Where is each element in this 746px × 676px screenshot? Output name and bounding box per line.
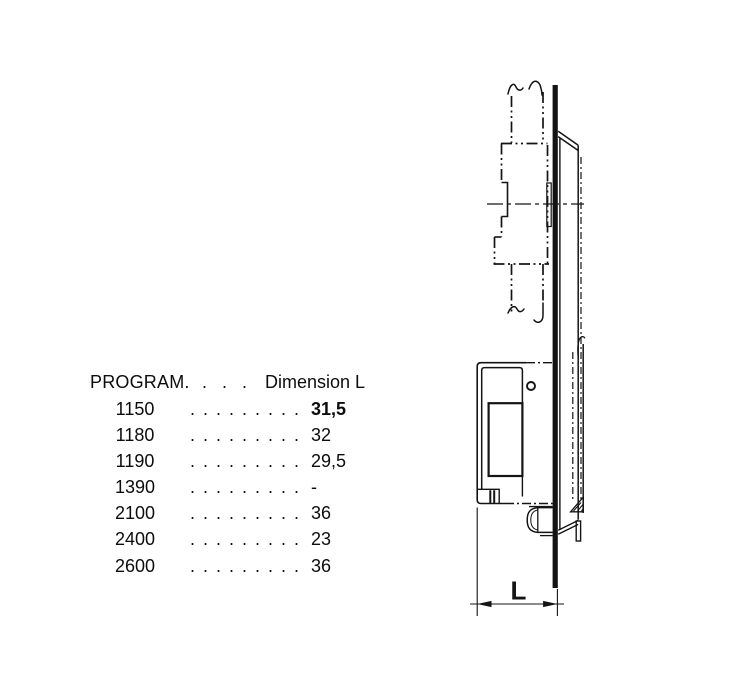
table-header-dimension: Dimension L — [265, 369, 365, 396]
arrow-right-icon — [543, 601, 557, 607]
program-number: 1390 — [90, 474, 180, 500]
dot-leader: ......... — [190, 474, 309, 500]
break-line-squiggles — [508, 81, 543, 322]
dot-leader: ......... — [190, 396, 309, 422]
dimension-value: 36 — [311, 553, 331, 579]
dimension-value: 29,5 — [311, 448, 346, 474]
table-row: 1190 ......... 29,5 — [90, 448, 405, 474]
table-header-dot-leader: ... — [202, 369, 266, 396]
cylinder-detail — [527, 508, 552, 536]
arrow-left-icon — [477, 601, 491, 607]
dot-leader: ......... — [190, 553, 309, 579]
dimension-annotation: L — [470, 508, 564, 617]
lock-case — [477, 363, 552, 507]
dimension-value: - — [311, 474, 317, 500]
dimension-value: 23 — [311, 526, 331, 552]
dimension-value: 31,5 — [311, 396, 346, 422]
dot-leader: ......... — [190, 500, 309, 526]
fixing-tab — [576, 521, 580, 541]
table-row: 2400 ......... 23 — [90, 526, 405, 552]
program-number: 2100 — [90, 500, 180, 526]
table-row: 2600 ......... 36 — [90, 553, 405, 579]
case-bottom-corner-detail — [477, 489, 499, 503]
program-number: 1190 — [90, 448, 180, 474]
dimension-value: 32 — [311, 422, 331, 448]
phantom-door-profile — [494, 92, 550, 312]
table-row: 1150 ......... 31,5 — [90, 396, 405, 422]
case-inner-panel — [489, 403, 523, 476]
hatched-corner — [571, 497, 584, 512]
table-header: PROGRAM. ... Dimension L — [90, 369, 405, 396]
faceplate — [553, 85, 558, 588]
dot-leader: ......... — [190, 422, 309, 448]
screw-hole — [527, 382, 535, 390]
program-number: 2600 — [90, 553, 180, 579]
program-number: 1150 — [90, 396, 180, 422]
side-panel — [558, 131, 585, 541]
dimension-l-label: L — [511, 576, 527, 606]
phantom-profile-notch — [495, 183, 508, 238]
table-header-program: PROGRAM. — [90, 369, 190, 396]
dimension-table: PROGRAM. ... Dimension L 1150 ......... … — [90, 369, 405, 579]
table-row: 1390 ......... - — [90, 474, 405, 500]
technical-drawing-page: L PROGRAM. ... Dimension L 1150 ........… — [0, 0, 746, 676]
program-number: 1180 — [90, 422, 180, 448]
dot-leader: ......... — [190, 448, 309, 474]
table-row: 2100 ......... 36 — [90, 500, 405, 526]
dimension-value: 36 — [311, 500, 331, 526]
program-number: 2400 — [90, 526, 180, 552]
table-row: 1180 ......... 32 — [90, 422, 405, 448]
dot-leader: ......... — [190, 526, 309, 552]
